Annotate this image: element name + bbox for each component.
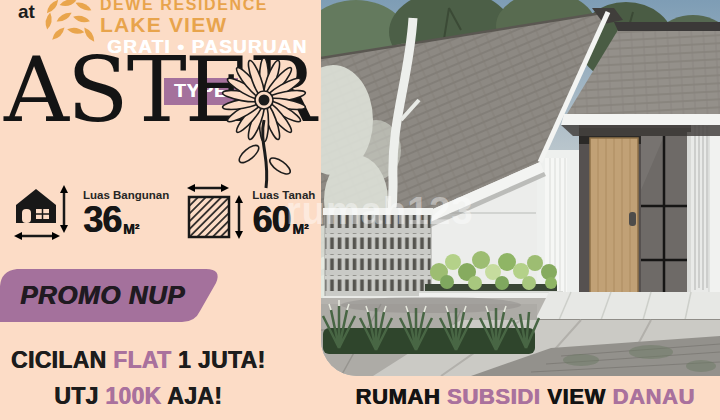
caption-text: VIEW <box>540 384 612 409</box>
spec-unit: M² <box>292 223 308 236</box>
spec-list: Luas Bangunan 36 M² <box>14 183 315 243</box>
promo-text: UTJ <box>54 383 105 409</box>
promo-highlight: 100K <box>105 383 161 409</box>
caption-text: RUMAH <box>355 384 447 409</box>
spec-number: 36 <box>83 204 121 236</box>
spec-number: 60 <box>252 204 290 236</box>
house-dimensions-icon <box>14 183 78 241</box>
caption-highlight: DANAU <box>612 384 694 409</box>
spec-value: 36 M² <box>83 204 169 236</box>
spec-value: 60 M² <box>252 204 315 236</box>
promo-text: 1 JUTA! <box>171 347 265 373</box>
promo-text: AJA! <box>161 383 222 409</box>
aster-flower-icon <box>220 58 308 194</box>
spec-text: Luas Tanah 60 M² <box>252 183 315 236</box>
breeze-block-wall <box>323 208 433 305</box>
spec-unit: M² <box>123 223 139 236</box>
promo-line-2: UTJ 100K AJA! <box>0 383 276 410</box>
promo-highlight: FLAT <box>113 347 171 373</box>
flyer-canvas: rumah123 at DEWE RESIDENCE LAKE <box>0 0 720 420</box>
spec-text: Luas Bangunan 36 M² <box>83 183 169 236</box>
house-photo <box>321 0 720 376</box>
promo-line-1: CICILAN FLAT 1 JUTA! <box>0 347 276 374</box>
curtain <box>691 120 709 292</box>
right-pillar <box>709 112 720 308</box>
bottom-caption: RUMAH SUBSIDI VIEW DANAU <box>334 384 716 410</box>
spec-land-area: Luas Tanah 60 M² <box>185 183 315 243</box>
house-render-scene <box>321 0 720 376</box>
door-handle <box>629 212 636 226</box>
porch <box>579 112 720 308</box>
spec-building-area: Luas Bangunan 36 M² <box>14 183 169 243</box>
wood-door <box>590 138 638 294</box>
promo-ribbon-label: PROMO NUP <box>20 280 185 311</box>
land-area-icon <box>185 183 247 243</box>
promo-text: CICILAN <box>11 347 113 373</box>
glass-wall <box>641 136 687 292</box>
promo-ribbon: PROMO NUP <box>0 268 234 324</box>
caption-highlight: SUBSIDI <box>447 384 540 409</box>
